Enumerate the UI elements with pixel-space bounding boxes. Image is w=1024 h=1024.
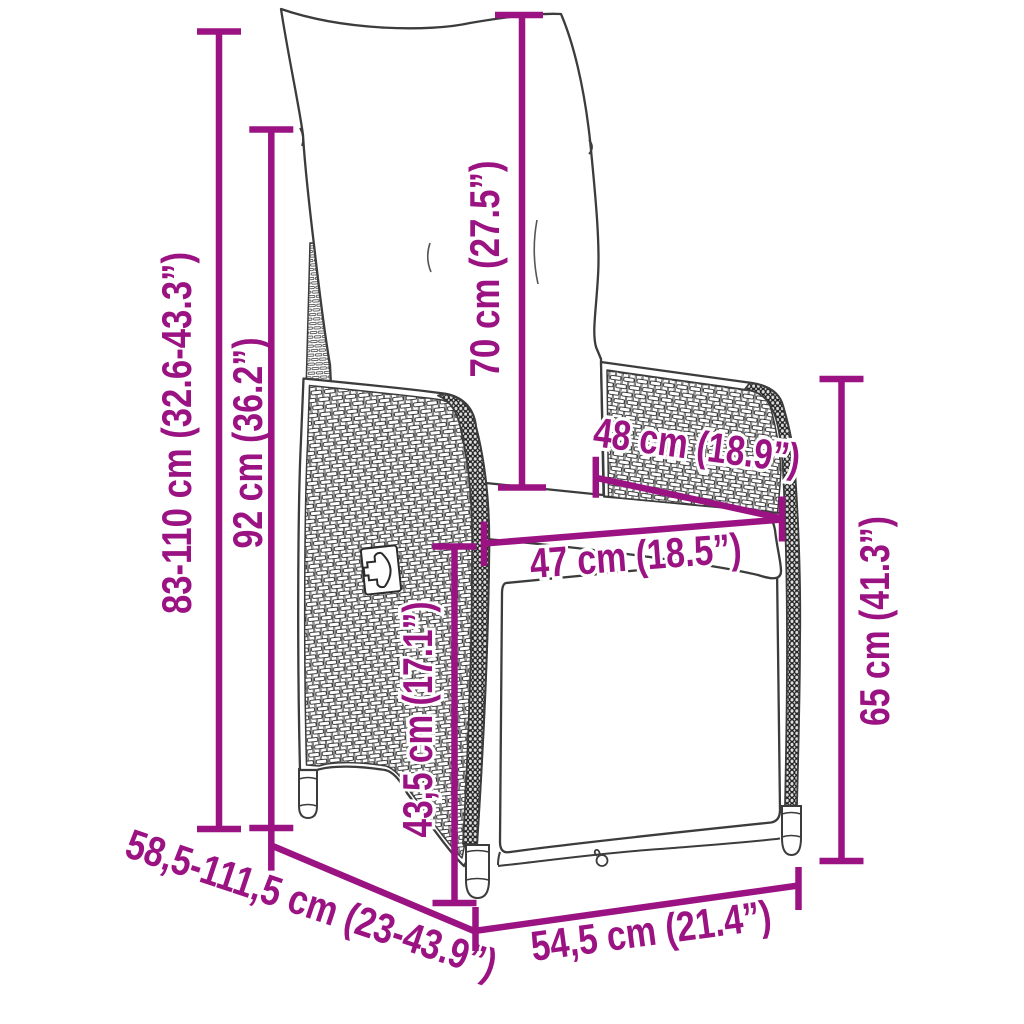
svg-text:92 cm (36.2”): 92 cm (36.2”)	[224, 338, 271, 549]
svg-text:83-110 cm (32.6-43.3”): 83-110 cm (32.6-43.3”)	[153, 252, 200, 614]
svg-text:70 cm (27.5”): 70 cm (27.5”)	[461, 161, 508, 378]
svg-text:65 cm (41.3”): 65 cm (41.3”)	[851, 516, 898, 726]
svg-text:43,5 cm (17.1”): 43,5 cm (17.1”)	[394, 602, 441, 838]
